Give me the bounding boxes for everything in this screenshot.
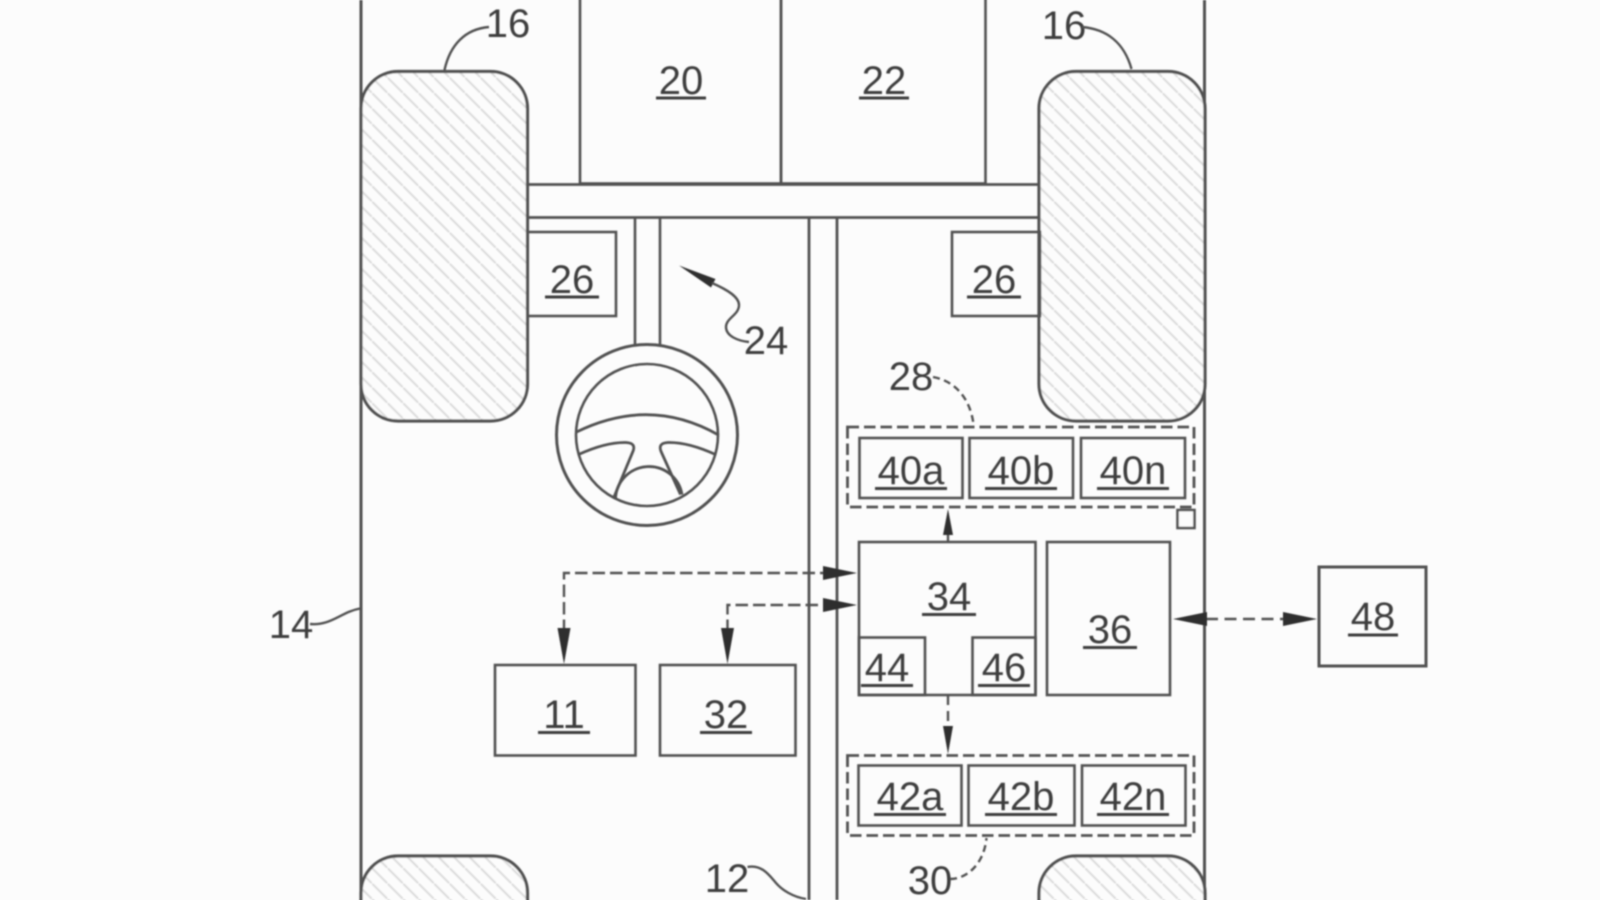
- svg-text:24: 24: [744, 319, 789, 363]
- svg-text:32: 32: [704, 693, 749, 737]
- svg-text:44: 44: [865, 646, 910, 690]
- svg-text:40a: 40a: [878, 449, 945, 493]
- svg-text:12: 12: [705, 857, 750, 900]
- svg-text:26: 26: [550, 258, 595, 302]
- svg-text:16: 16: [486, 2, 531, 46]
- svg-text:40b: 40b: [988, 449, 1055, 493]
- svg-text:30: 30: [908, 859, 953, 900]
- svg-text:34: 34: [927, 575, 972, 619]
- svg-text:42n: 42n: [1100, 775, 1167, 819]
- svg-text:20: 20: [659, 59, 704, 103]
- svg-text:22: 22: [862, 59, 907, 103]
- svg-text:42b: 42b: [988, 775, 1055, 819]
- svg-text:14: 14: [269, 603, 314, 647]
- svg-text:48: 48: [1351, 595, 1396, 639]
- svg-text:36: 36: [1088, 608, 1133, 652]
- svg-text:26: 26: [972, 258, 1017, 302]
- svg-text:11: 11: [543, 693, 585, 737]
- svg-text:40n: 40n: [1100, 449, 1167, 493]
- svg-text:28: 28: [889, 355, 934, 399]
- svg-text:42a: 42a: [877, 775, 944, 819]
- svg-text:46: 46: [982, 646, 1027, 690]
- svg-text:16: 16: [1042, 4, 1087, 48]
